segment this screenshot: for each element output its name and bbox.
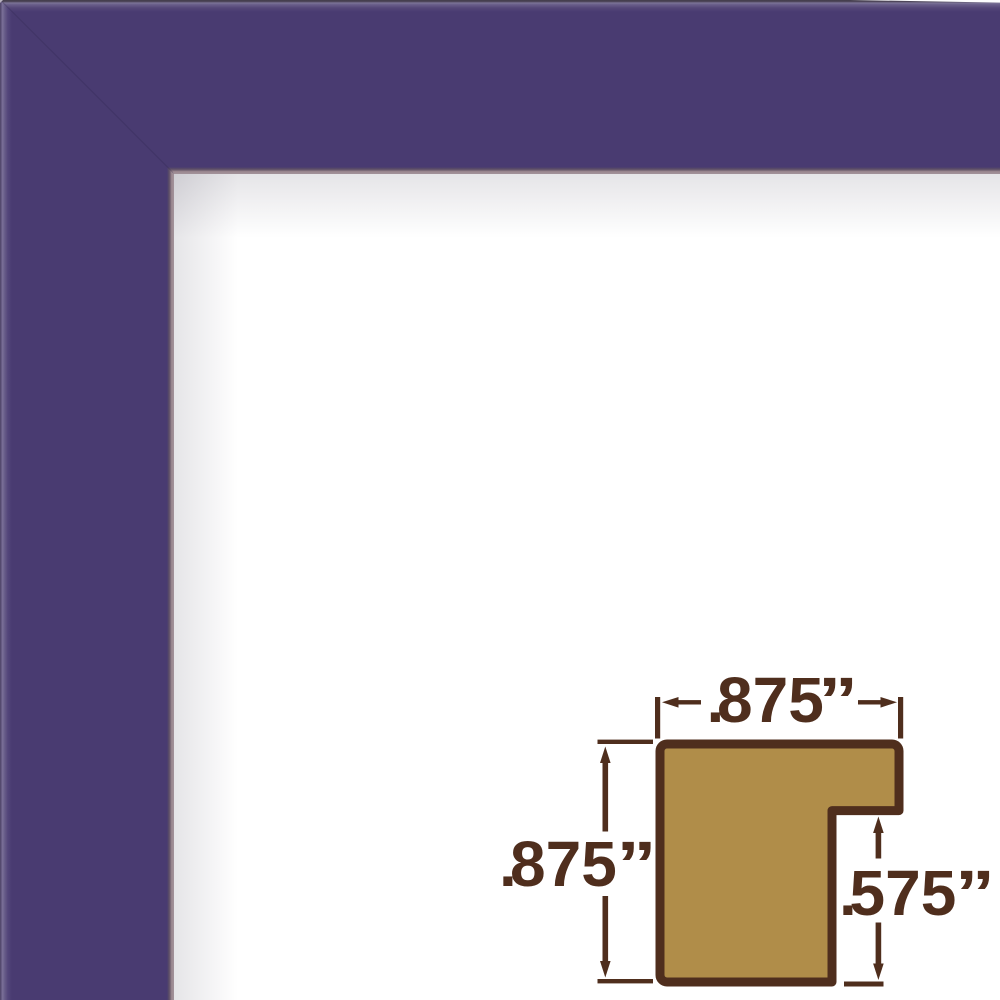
svg-text:875: 875: [717, 664, 824, 736]
svg-text:875: 875: [510, 828, 617, 900]
svg-text:”: ”: [955, 858, 995, 930]
svg-text:575: 575: [850, 857, 957, 929]
svg-text:”: ”: [617, 829, 657, 901]
svg-text:”: ”: [818, 665, 858, 737]
